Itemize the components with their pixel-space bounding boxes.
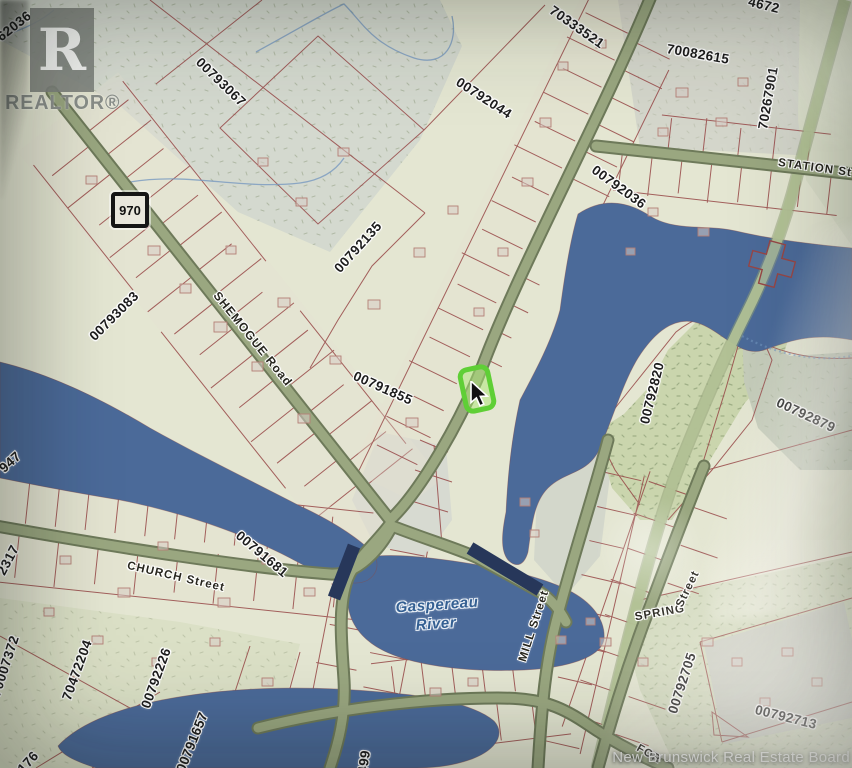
map-viewport: 6203600793067007920447033352146727008261… — [0, 0, 852, 768]
realtor-logo: R REALTOR® — [26, 6, 136, 122]
route-number: 970 — [119, 203, 141, 218]
realtor-logo-block: R — [30, 8, 94, 92]
route-970-shield: 970 — [111, 192, 149, 228]
realtor-logo-text: REALTOR® — [5, 92, 120, 115]
realtor-logo-letter: R — [38, 21, 86, 79]
selected-parcel-highlight[interactable] — [459, 366, 495, 413]
board-credit: New Brunswick Real Estate Board — [612, 749, 850, 766]
